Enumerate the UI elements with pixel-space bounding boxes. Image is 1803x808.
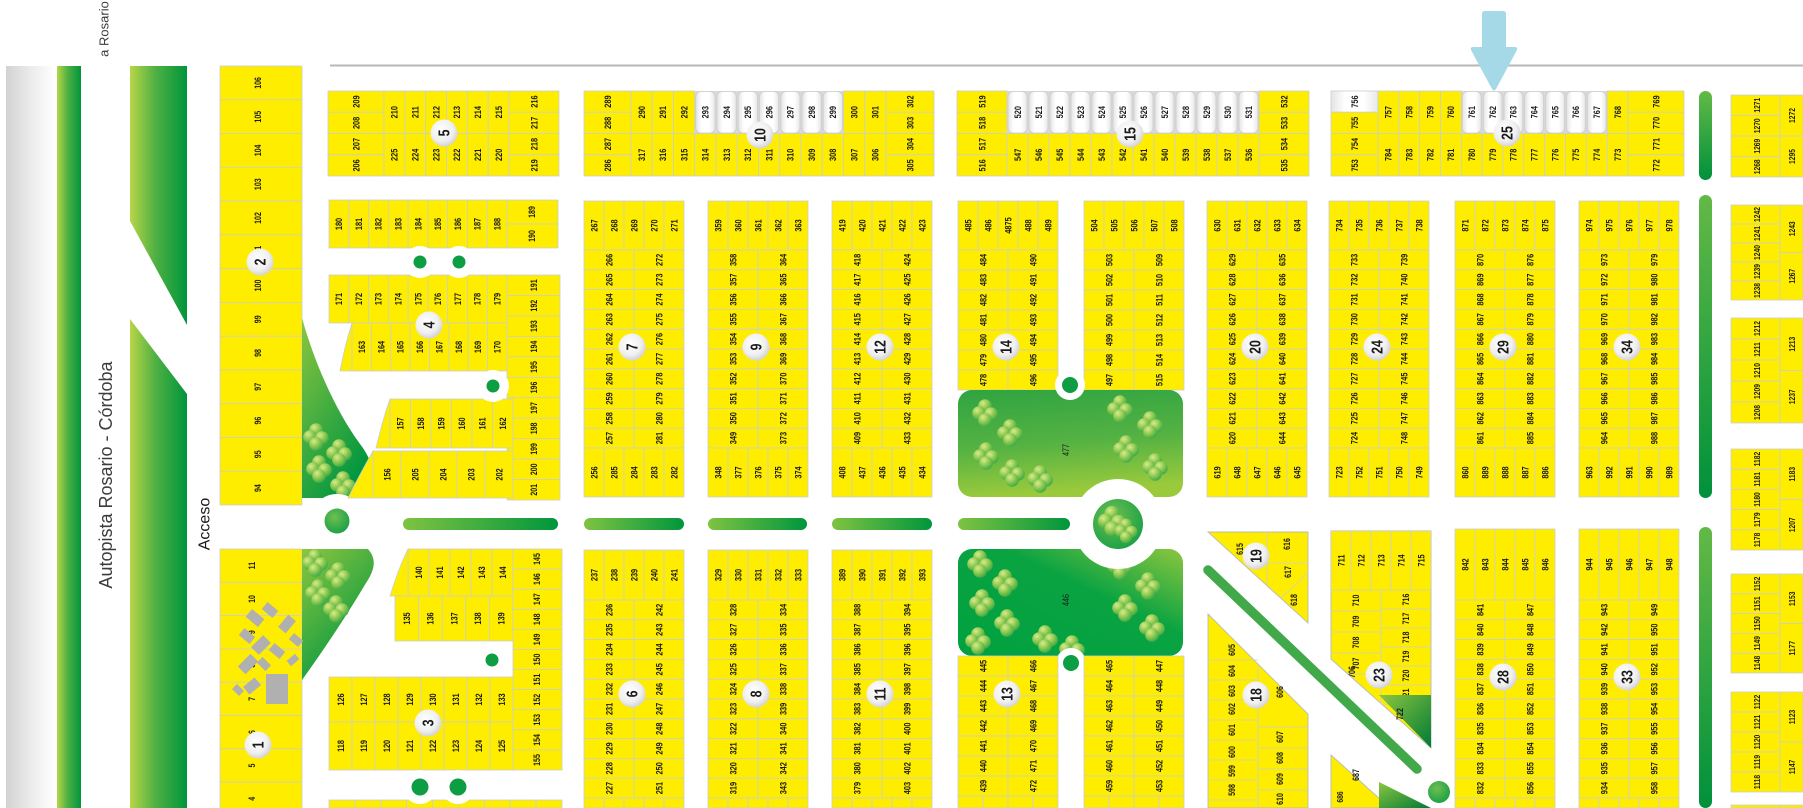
svg-text:408: 408 <box>836 466 847 479</box>
svg-text:979: 979 <box>1648 253 1659 266</box>
svg-text:1123: 1123 <box>1787 710 1797 725</box>
svg-text:729: 729 <box>1348 333 1359 346</box>
svg-text:854: 854 <box>1524 742 1535 755</box>
svg-text:402: 402 <box>901 762 912 775</box>
svg-text:625: 625 <box>1226 333 1237 346</box>
svg-text:465: 465 <box>1103 660 1114 673</box>
svg-text:286: 286 <box>602 159 613 172</box>
svg-text:280: 280 <box>653 412 664 425</box>
svg-text:28: 28 <box>1494 670 1512 684</box>
svg-text:33: 33 <box>1618 670 1636 684</box>
svg-text:862: 862 <box>1474 412 1485 425</box>
svg-text:321: 321 <box>727 742 738 755</box>
svg-text:963: 963 <box>1583 466 1594 479</box>
svg-text:1: 1 <box>249 741 267 748</box>
svg-text:211: 211 <box>410 106 421 118</box>
svg-text:480: 480 <box>977 334 988 347</box>
svg-text:396: 396 <box>901 643 912 656</box>
svg-text:632: 632 <box>1251 219 1262 232</box>
svg-text:358: 358 <box>727 253 738 266</box>
svg-text:124: 124 <box>473 740 484 753</box>
svg-text:522: 522 <box>1054 106 1065 119</box>
svg-text:739: 739 <box>1398 253 1409 266</box>
svg-text:777: 777 <box>1529 148 1540 161</box>
svg-text:462: 462 <box>1103 720 1114 733</box>
svg-text:391: 391 <box>876 569 887 582</box>
svg-text:436: 436 <box>876 466 887 479</box>
svg-text:368: 368 <box>777 333 788 346</box>
svg-text:216: 216 <box>528 95 539 108</box>
svg-text:383: 383 <box>851 702 862 715</box>
svg-text:882: 882 <box>1524 372 1535 385</box>
svg-text:755: 755 <box>1349 116 1360 129</box>
svg-text:976: 976 <box>1623 219 1634 232</box>
svg-text:530: 530 <box>1222 106 1233 119</box>
svg-text:544: 544 <box>1075 148 1086 161</box>
svg-text:510: 510 <box>1153 274 1164 287</box>
svg-text:737: 737 <box>1393 219 1404 232</box>
svg-text:518: 518 <box>976 116 987 129</box>
svg-text:141: 141 <box>434 566 445 579</box>
svg-text:744: 744 <box>1398 352 1409 365</box>
svg-text:152: 152 <box>532 693 542 705</box>
svg-text:883: 883 <box>1524 392 1535 405</box>
svg-text:610: 610 <box>1275 793 1285 805</box>
svg-text:364: 364 <box>777 253 788 266</box>
svg-text:766: 766 <box>1570 106 1581 119</box>
svg-text:227: 227 <box>603 782 614 795</box>
svg-text:214: 214 <box>472 106 483 119</box>
svg-text:153: 153 <box>532 713 542 725</box>
svg-text:260: 260 <box>603 372 614 385</box>
svg-text:723: 723 <box>1333 466 1344 479</box>
svg-text:273: 273 <box>653 273 664 286</box>
svg-text:515: 515 <box>1153 374 1164 387</box>
svg-text:1209: 1209 <box>1752 384 1762 399</box>
svg-text:209: 209 <box>350 95 361 108</box>
svg-text:947: 947 <box>1643 558 1654 571</box>
svg-text:157: 157 <box>395 417 406 430</box>
svg-text:6: 6 <box>623 690 641 697</box>
svg-text:756: 756 <box>1349 95 1360 108</box>
svg-text:221: 221 <box>472 148 483 161</box>
svg-text:523: 523 <box>1075 106 1086 119</box>
svg-text:633: 633 <box>1271 219 1282 232</box>
svg-text:144: 144 <box>497 566 508 579</box>
svg-text:746: 746 <box>1398 392 1409 405</box>
svg-text:637: 637 <box>1276 293 1287 306</box>
svg-text:397: 397 <box>901 663 912 676</box>
svg-text:1120: 1120 <box>1752 735 1762 750</box>
svg-text:602: 602 <box>1227 703 1237 715</box>
svg-text:837: 837 <box>1474 683 1485 696</box>
svg-text:492: 492 <box>1027 294 1038 307</box>
svg-text:604: 604 <box>1227 665 1237 677</box>
svg-text:686: 686 <box>1335 791 1345 802</box>
svg-text:118: 118 <box>335 740 346 752</box>
svg-text:181: 181 <box>353 218 364 231</box>
svg-text:991: 991 <box>1623 466 1634 479</box>
svg-text:446: 446 <box>1061 594 1071 606</box>
svg-text:376: 376 <box>752 466 763 479</box>
svg-text:496: 496 <box>1027 374 1038 387</box>
svg-text:498: 498 <box>1103 354 1114 367</box>
svg-text:125: 125 <box>496 740 507 753</box>
svg-text:206: 206 <box>350 159 361 172</box>
svg-text:434: 434 <box>916 466 927 479</box>
svg-text:484: 484 <box>977 254 988 267</box>
svg-text:222: 222 <box>451 148 462 161</box>
svg-text:3: 3 <box>419 719 437 726</box>
svg-text:460: 460 <box>1103 760 1114 773</box>
svg-text:161: 161 <box>477 417 488 430</box>
svg-text:1237: 1237 <box>1787 389 1797 404</box>
svg-text:636: 636 <box>1276 273 1287 286</box>
svg-text:201: 201 <box>529 483 539 495</box>
svg-text:423: 423 <box>916 219 927 232</box>
svg-text:950: 950 <box>1648 623 1659 636</box>
svg-text:943: 943 <box>1598 603 1609 616</box>
svg-text:272: 272 <box>653 253 664 266</box>
svg-text:547: 547 <box>1012 148 1023 161</box>
svg-text:418: 418 <box>851 253 862 266</box>
svg-text:716: 716 <box>1401 593 1411 605</box>
svg-text:982: 982 <box>1648 313 1659 326</box>
svg-text:526: 526 <box>1138 106 1149 119</box>
svg-text:941: 941 <box>1598 643 1609 656</box>
svg-text:966: 966 <box>1598 392 1609 405</box>
svg-text:888: 888 <box>1499 466 1510 479</box>
svg-text:1179: 1179 <box>1752 512 1762 527</box>
svg-text:7: 7 <box>623 343 641 350</box>
svg-text:748: 748 <box>1398 432 1409 445</box>
svg-text:421: 421 <box>876 219 887 232</box>
svg-text:338: 338 <box>777 683 788 696</box>
svg-text:20: 20 <box>1246 340 1264 354</box>
svg-text:935: 935 <box>1598 762 1609 775</box>
svg-text:724: 724 <box>1348 432 1359 445</box>
svg-text:463: 463 <box>1103 700 1114 713</box>
svg-text:351: 351 <box>727 392 738 405</box>
svg-text:381: 381 <box>851 742 862 755</box>
svg-text:151: 151 <box>532 673 542 685</box>
svg-text:126: 126 <box>335 693 346 706</box>
svg-text:190: 190 <box>527 230 537 242</box>
svg-text:198: 198 <box>529 422 539 434</box>
svg-text:359: 359 <box>712 219 723 232</box>
svg-text:231: 231 <box>603 702 614 715</box>
svg-text:Acceso: Acceso <box>197 498 214 551</box>
svg-text:394: 394 <box>901 603 912 616</box>
svg-text:97: 97 <box>253 382 263 390</box>
svg-text:541: 541 <box>1138 148 1149 161</box>
svg-text:708: 708 <box>1351 636 1361 648</box>
svg-text:445: 445 <box>977 660 988 673</box>
svg-text:782: 782 <box>1425 148 1436 161</box>
svg-text:885: 885 <box>1524 432 1535 445</box>
svg-text:887: 887 <box>1519 466 1530 479</box>
svg-text:166: 166 <box>414 341 425 354</box>
svg-text:270: 270 <box>648 219 659 232</box>
svg-text:980: 980 <box>1648 273 1659 286</box>
svg-text:439: 439 <box>977 780 988 793</box>
svg-text:939: 939 <box>1598 683 1609 696</box>
svg-text:241: 241 <box>668 569 679 582</box>
svg-text:606: 606 <box>1275 686 1285 698</box>
svg-text:850: 850 <box>1524 663 1535 676</box>
svg-text:435: 435 <box>896 466 907 479</box>
svg-text:747: 747 <box>1398 412 1409 425</box>
svg-text:627: 627 <box>1226 293 1237 306</box>
svg-text:953: 953 <box>1648 683 1659 696</box>
svg-text:738: 738 <box>1413 219 1424 232</box>
svg-text:1267: 1267 <box>1787 269 1797 284</box>
svg-text:715: 715 <box>1415 554 1426 567</box>
svg-text:780: 780 <box>1466 148 1477 161</box>
svg-text:314: 314 <box>700 148 711 161</box>
svg-text:147: 147 <box>532 593 542 605</box>
svg-text:720: 720 <box>1401 669 1411 681</box>
svg-text:718: 718 <box>1401 631 1411 643</box>
svg-text:183: 183 <box>393 218 404 231</box>
svg-text:128: 128 <box>381 693 392 706</box>
svg-text:490: 490 <box>1027 254 1038 267</box>
svg-text:342: 342 <box>777 762 788 775</box>
svg-text:870: 870 <box>1474 253 1485 266</box>
svg-text:433: 433 <box>901 432 912 445</box>
svg-text:936: 936 <box>1598 742 1609 755</box>
svg-text:395: 395 <box>901 623 912 636</box>
svg-text:1295: 1295 <box>1787 148 1797 164</box>
svg-text:975: 975 <box>1603 219 1614 232</box>
svg-text:1271: 1271 <box>1752 97 1762 113</box>
svg-text:431: 431 <box>901 392 912 405</box>
svg-text:600: 600 <box>1227 746 1237 758</box>
svg-text:333: 333 <box>792 569 803 582</box>
svg-text:420: 420 <box>856 219 867 232</box>
svg-text:488: 488 <box>1022 219 1033 232</box>
svg-text:710: 710 <box>1351 594 1361 606</box>
svg-text:772: 772 <box>1650 159 1661 172</box>
svg-text:1147: 1147 <box>1787 760 1797 775</box>
svg-text:308: 308 <box>827 148 838 161</box>
svg-text:415: 415 <box>851 313 862 326</box>
svg-text:1181: 1181 <box>1752 471 1762 486</box>
svg-text:750: 750 <box>1393 466 1404 479</box>
svg-text:761: 761 <box>1466 106 1477 119</box>
svg-text:411: 411 <box>851 392 862 404</box>
svg-text:240: 240 <box>648 569 659 582</box>
svg-text:365: 365 <box>777 273 788 286</box>
svg-text:238: 238 <box>608 569 619 582</box>
svg-text:99: 99 <box>253 315 263 323</box>
svg-text:380: 380 <box>851 762 862 775</box>
svg-text:879: 879 <box>1524 313 1535 326</box>
svg-text:250: 250 <box>653 762 664 775</box>
svg-text:196: 196 <box>529 381 539 393</box>
svg-text:529: 529 <box>1201 106 1212 119</box>
svg-text:934: 934 <box>1598 782 1609 795</box>
svg-text:467: 467 <box>1027 680 1038 693</box>
svg-text:377: 377 <box>732 466 743 479</box>
svg-text:760: 760 <box>1445 106 1456 119</box>
svg-text:337: 337 <box>777 663 788 676</box>
svg-text:154: 154 <box>532 734 542 746</box>
svg-text:520: 520 <box>1012 106 1023 119</box>
svg-text:401: 401 <box>901 742 912 755</box>
svg-text:369: 369 <box>777 352 788 365</box>
svg-text:102: 102 <box>253 212 263 224</box>
svg-text:1180: 1180 <box>1752 492 1762 507</box>
svg-text:846: 846 <box>1539 558 1550 571</box>
svg-text:869: 869 <box>1474 273 1485 286</box>
svg-text:242: 242 <box>653 603 664 616</box>
svg-text:316: 316 <box>657 148 668 161</box>
svg-text:370: 370 <box>777 372 788 385</box>
svg-text:945: 945 <box>1603 558 1614 571</box>
svg-text:1149: 1149 <box>1752 636 1762 651</box>
svg-text:519: 519 <box>976 95 987 108</box>
svg-text:297: 297 <box>785 106 796 119</box>
svg-text:233: 233 <box>603 663 614 676</box>
svg-text:1210: 1210 <box>1752 363 1762 378</box>
svg-text:373: 373 <box>777 432 788 445</box>
svg-text:468: 468 <box>1027 700 1038 713</box>
svg-text:726: 726 <box>1348 392 1359 405</box>
svg-text:734: 734 <box>1333 219 1344 232</box>
svg-text:98: 98 <box>253 349 263 357</box>
svg-text:324: 324 <box>727 683 738 696</box>
svg-text:483: 483 <box>977 274 988 287</box>
svg-text:886: 886 <box>1539 466 1550 479</box>
svg-text:352: 352 <box>727 372 738 385</box>
svg-text:282: 282 <box>668 466 679 479</box>
svg-text:868: 868 <box>1474 293 1485 306</box>
svg-text:464: 464 <box>1103 680 1114 693</box>
svg-text:159: 159 <box>436 417 447 430</box>
svg-text:848: 848 <box>1524 623 1535 636</box>
svg-text:409: 409 <box>851 432 862 445</box>
svg-text:299: 299 <box>827 106 838 119</box>
svg-text:500: 500 <box>1103 314 1114 327</box>
svg-text:309: 309 <box>806 148 817 161</box>
svg-text:1182: 1182 <box>1752 452 1762 467</box>
svg-text:379: 379 <box>851 782 862 795</box>
svg-text:264: 264 <box>603 293 614 306</box>
svg-text:149: 149 <box>532 633 542 645</box>
svg-text:849: 849 <box>1524 643 1535 656</box>
svg-text:353: 353 <box>727 352 738 365</box>
svg-text:440: 440 <box>977 760 988 773</box>
svg-text:403: 403 <box>901 782 912 795</box>
svg-text:864: 864 <box>1474 372 1485 385</box>
svg-text:Autopista Rosario - Córdoba: Autopista Rosario - Córdoba <box>96 360 116 588</box>
svg-text:1241: 1241 <box>1752 225 1762 241</box>
svg-text:539: 539 <box>1180 148 1191 161</box>
svg-text:15: 15 <box>1121 127 1139 141</box>
svg-text:509: 509 <box>1153 254 1164 267</box>
svg-text:532: 532 <box>1278 95 1289 108</box>
svg-text:607: 607 <box>1275 731 1285 743</box>
svg-text:197: 197 <box>529 402 539 414</box>
svg-text:371: 371 <box>777 392 788 405</box>
svg-text:493: 493 <box>1027 314 1038 327</box>
svg-text:867: 867 <box>1474 313 1485 326</box>
svg-text:714: 714 <box>1395 554 1406 567</box>
svg-text:626: 626 <box>1226 313 1237 326</box>
svg-text:326: 326 <box>727 643 738 656</box>
svg-text:973: 973 <box>1598 253 1609 266</box>
svg-text:852: 852 <box>1524 702 1535 715</box>
svg-text:419: 419 <box>836 219 847 232</box>
svg-text:743: 743 <box>1398 333 1409 346</box>
svg-text:34: 34 <box>1618 340 1636 354</box>
svg-text:301: 301 <box>870 106 881 119</box>
svg-text:178: 178 <box>472 293 483 306</box>
svg-text:229: 229 <box>603 742 614 755</box>
svg-text:131: 131 <box>450 693 461 706</box>
svg-text:184: 184 <box>412 218 423 231</box>
svg-text:262: 262 <box>603 333 614 346</box>
svg-text:754: 754 <box>1349 138 1360 151</box>
svg-text:753: 753 <box>1349 159 1360 172</box>
svg-text:735: 735 <box>1353 219 1364 232</box>
svg-text:341: 341 <box>777 742 788 755</box>
svg-text:162: 162 <box>497 417 508 430</box>
svg-text:424: 424 <box>901 253 912 266</box>
svg-text:168: 168 <box>453 341 464 354</box>
svg-text:437: 437 <box>856 466 867 479</box>
svg-text:742: 742 <box>1398 313 1409 326</box>
svg-text:598: 598 <box>1227 784 1237 796</box>
svg-text:762: 762 <box>1487 106 1498 119</box>
svg-text:175: 175 <box>412 293 423 306</box>
svg-text:709: 709 <box>1351 615 1361 627</box>
svg-text:958: 958 <box>1648 782 1659 795</box>
svg-text:985: 985 <box>1648 372 1659 385</box>
svg-text:132: 132 <box>473 693 484 706</box>
svg-text:29: 29 <box>1494 340 1512 354</box>
svg-text:14: 14 <box>997 340 1015 354</box>
svg-text:536: 536 <box>1243 148 1254 161</box>
svg-text:223: 223 <box>431 148 442 161</box>
svg-text:432: 432 <box>901 412 912 425</box>
svg-text:974: 974 <box>1583 219 1594 232</box>
svg-text:274: 274 <box>653 293 664 306</box>
svg-text:427: 427 <box>901 313 912 326</box>
svg-text:765: 765 <box>1550 106 1561 119</box>
svg-text:618: 618 <box>1289 594 1299 606</box>
svg-text:160: 160 <box>456 417 467 430</box>
svg-text:946: 946 <box>1623 558 1634 571</box>
svg-text:304: 304 <box>904 138 915 151</box>
svg-text:389: 389 <box>836 569 847 582</box>
svg-text:838: 838 <box>1474 663 1485 676</box>
svg-text:200: 200 <box>529 463 539 475</box>
svg-text:148: 148 <box>532 613 542 625</box>
svg-text:781: 781 <box>1445 148 1456 161</box>
svg-text:687: 687 <box>1351 769 1361 781</box>
svg-text:875: 875 <box>1539 219 1550 232</box>
svg-text:410: 410 <box>851 412 862 425</box>
svg-text:442: 442 <box>977 720 988 733</box>
svg-text:525: 525 <box>1117 106 1128 119</box>
svg-text:339: 339 <box>777 702 788 715</box>
svg-text:12: 12 <box>871 340 889 354</box>
svg-text:193: 193 <box>529 320 539 332</box>
svg-text:398: 398 <box>901 683 912 696</box>
svg-text:629: 629 <box>1226 253 1237 266</box>
